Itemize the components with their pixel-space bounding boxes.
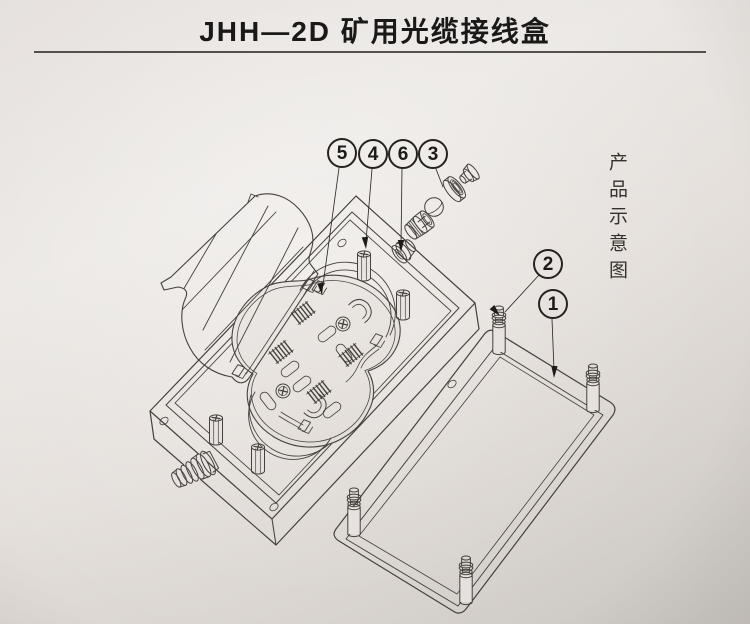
callout-2: 2 bbox=[533, 249, 563, 279]
callout-5-number: 5 bbox=[337, 144, 348, 163]
callout-3-number: 3 bbox=[428, 145, 439, 164]
exploded-view-diagram bbox=[0, 0, 750, 624]
callout-5: 5 bbox=[327, 138, 357, 168]
callout-3: 3 bbox=[418, 139, 448, 169]
callout-6-number: 6 bbox=[398, 145, 409, 164]
page-title: JHH—2D 矿用光缆接线盒 bbox=[0, 10, 750, 50]
photo-vignette bbox=[0, 0, 750, 624]
title-underline bbox=[34, 51, 706, 53]
callout-6: 6 bbox=[388, 139, 418, 169]
side-caption: 产品示意图 bbox=[603, 152, 630, 287]
callout-4-number: 4 bbox=[368, 145, 379, 164]
callout-1-number: 1 bbox=[548, 295, 559, 314]
callout-1: 1 bbox=[538, 289, 568, 319]
callout-4: 4 bbox=[358, 139, 388, 169]
photographed-catalog-page: JHH—2D 矿用光缆接线盒 产品示意图 5 4 6 3 2 1 bbox=[0, 0, 750, 624]
callout-2-number: 2 bbox=[543, 255, 554, 274]
